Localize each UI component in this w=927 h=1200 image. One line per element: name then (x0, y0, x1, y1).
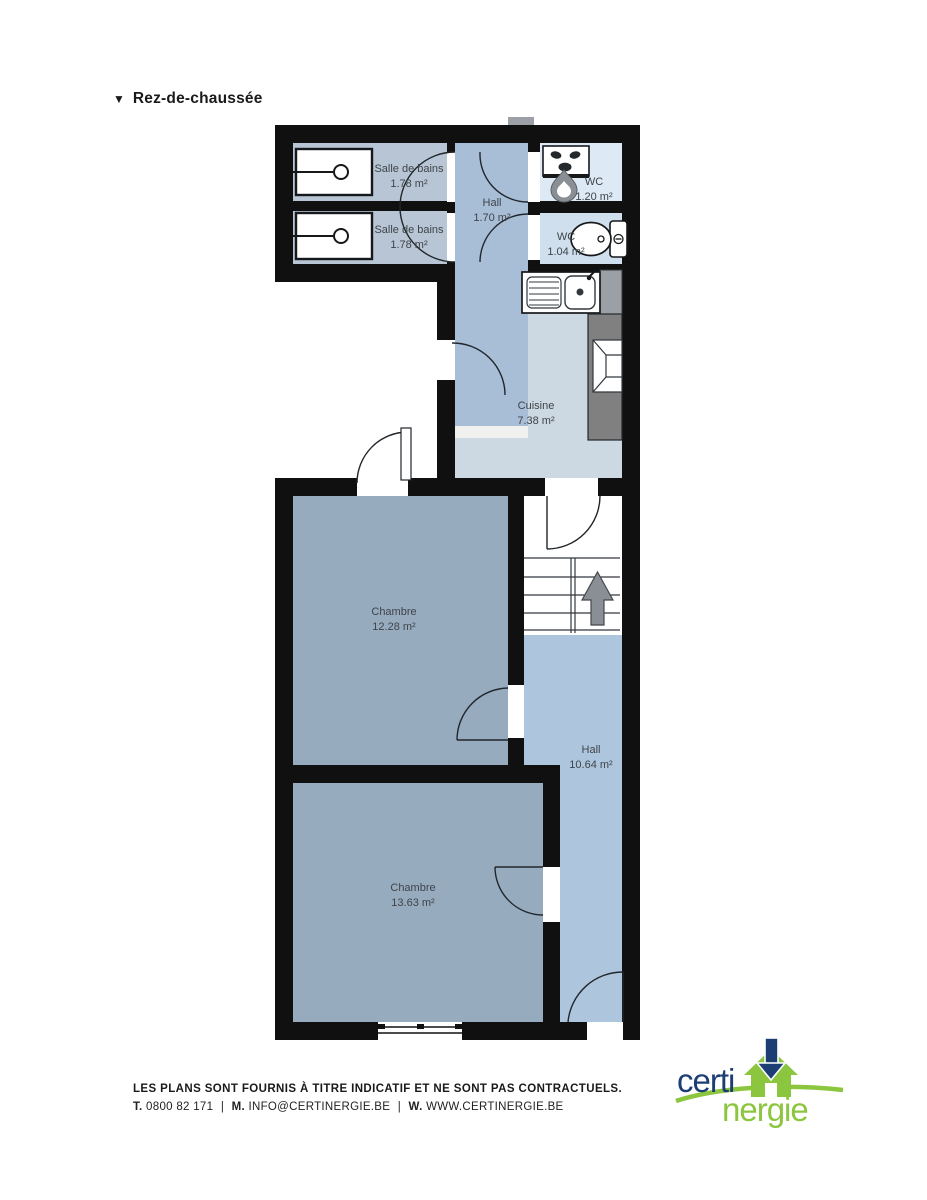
door-arc-chambre1-ext (357, 432, 408, 483)
web-label: W. (409, 1101, 423, 1113)
logo-text-nergie: nergie (722, 1091, 808, 1128)
wall-top (275, 125, 640, 143)
wc2-name-label: WC (557, 231, 575, 243)
cuisine-area-label: 7.38 m² (517, 415, 555, 427)
certinergie-logo: certi nergie (676, 1038, 843, 1128)
cuisine-name-label: Cuisine (518, 400, 555, 412)
contact-line: T. 0800 82 171 | M. INFO@CERTINERGIE.BE … (133, 1101, 693, 1113)
disclaimer-text: LES PLANS SONT FOURNIS À TITRE INDICATIF… (133, 1083, 693, 1095)
threshold-entrance (587, 1022, 623, 1040)
wall-sdb-bottom (275, 264, 455, 282)
threshold-wc1 (528, 152, 540, 202)
sdb2-area-label: 1.78 m² (390, 239, 428, 251)
separator: | (221, 1101, 224, 1113)
chambre2-area-label: 13.63 m² (391, 897, 435, 909)
kitchen-counter-table-icon (588, 314, 622, 440)
threshold-sdb2 (447, 213, 455, 262)
phone-label: T. (133, 1101, 143, 1113)
wall-sdb-divider (293, 201, 455, 211)
sdb1-name-label: Salle de bains (374, 163, 444, 175)
hall2-area-label: 10.64 m² (569, 759, 613, 771)
wc1-area-label: 1.20 m² (575, 191, 613, 203)
page: ▼ Rez-de-chaussée (0, 0, 927, 1200)
hall1-area-label: 1.70 m² (473, 212, 511, 224)
hall2-name-label: Hall (582, 744, 601, 756)
chambre1-name-label: Chambre (371, 606, 416, 618)
hall-2-floor-upper (524, 635, 622, 765)
wall-left-upper (275, 125, 293, 282)
window-symbol (378, 1022, 462, 1040)
wall-chambre-divider (275, 765, 560, 783)
kitchen-sink-icon (522, 270, 622, 314)
bathtub-2-icon (293, 213, 372, 259)
bathtub-1-icon (293, 149, 372, 195)
threshold-wc2 (528, 215, 540, 260)
sdb1-area-label: 1.78 m² (390, 178, 428, 190)
threshold-stairs (545, 478, 598, 496)
floor-plan: Salle de bains 1.78 m² Salle de bains 1.… (0, 0, 927, 1200)
door-leaf-chambre1-ext (401, 428, 411, 480)
email-label: M. (232, 1101, 245, 1113)
hall-cuisine-threshold (455, 426, 528, 438)
chambre1-area-label: 12.28 m² (372, 621, 416, 633)
chambre2-name-label: Chambre (390, 882, 435, 894)
separator: | (398, 1101, 401, 1113)
threshold-sdb1 (447, 152, 455, 202)
threshold-chambre1 (508, 685, 524, 738)
threshold-chambre2 (543, 867, 560, 922)
wall-right (622, 125, 640, 1040)
wall-cuisine-west (437, 282, 455, 480)
hall1-name-label: Hall (483, 197, 502, 209)
wc1-name-label: WC (585, 176, 603, 188)
wc2-area-label: 1.04 m² (547, 246, 585, 258)
email-address: INFO@CERTINERGIE.BE (248, 1101, 390, 1113)
footer: LES PLANS SONT FOURNIS À TITRE INDICATIF… (133, 1083, 693, 1113)
wall-left-lower (275, 478, 293, 1040)
threshold-chambre1-ext (357, 478, 408, 496)
staircase-floor (524, 496, 622, 635)
hall-2-floor-lower (560, 765, 622, 1022)
sdb2-name-label: Salle de bains (374, 224, 444, 236)
threshold-cuisine (437, 340, 455, 380)
web-address: WWW.CERTINERGIE.BE (426, 1101, 563, 1113)
phone-number: 0800 82 171 (146, 1101, 213, 1113)
